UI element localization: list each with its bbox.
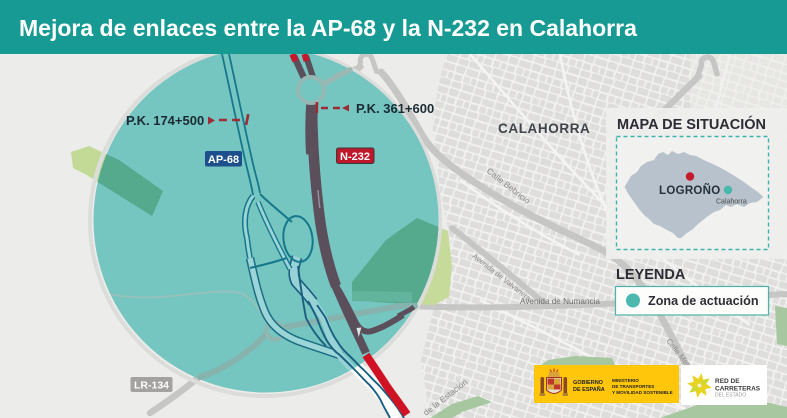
svg-text:P.K. 174+500: P.K. 174+500: [126, 113, 204, 128]
svg-text:MINISTERIO: MINISTERIO: [612, 378, 639, 383]
svg-text:CALAHORRA: CALAHORRA: [498, 121, 590, 136]
svg-text:LEYENDA: LEYENDA: [616, 267, 686, 283]
svg-text:LR-134: LR-134: [134, 380, 169, 392]
svg-text:MAPA DE SITUACIÓN: MAPA DE SITUACIÓN: [617, 115, 766, 133]
svg-text:Avenida de Numancia: Avenida de Numancia: [520, 297, 600, 306]
svg-text:LOGROÑO: LOGROÑO: [659, 184, 721, 197]
svg-text:GOBIERNO: GOBIERNO: [573, 380, 604, 386]
svg-text:CARRETERAS: CARRETERAS: [715, 386, 761, 393]
svg-text:Zona de actuación: Zona de actuación: [648, 294, 759, 308]
svg-text:Calahorra: Calahorra: [716, 199, 747, 206]
svg-text:RED DE: RED DE: [715, 378, 740, 385]
svg-text:P.K. 361+600: P.K. 361+600: [356, 101, 434, 116]
svg-text:DE ESPAÑA: DE ESPAÑA: [573, 386, 605, 393]
svg-text:DEL ESTADO: DEL ESTADO: [715, 393, 746, 399]
svg-text:DE TRANSPORTES: DE TRANSPORTES: [612, 384, 654, 389]
svg-text:Y MOVILIDAD SOSTENIBLE: Y MOVILIDAD SOSTENIBLE: [612, 390, 673, 395]
svg-text:N-232: N-232: [340, 151, 370, 163]
svg-text:AP-68: AP-68: [208, 154, 239, 166]
svg-text:Mejora de enlaces entre la AP-: Mejora de enlaces entre la AP-68 y la N-…: [19, 15, 637, 41]
